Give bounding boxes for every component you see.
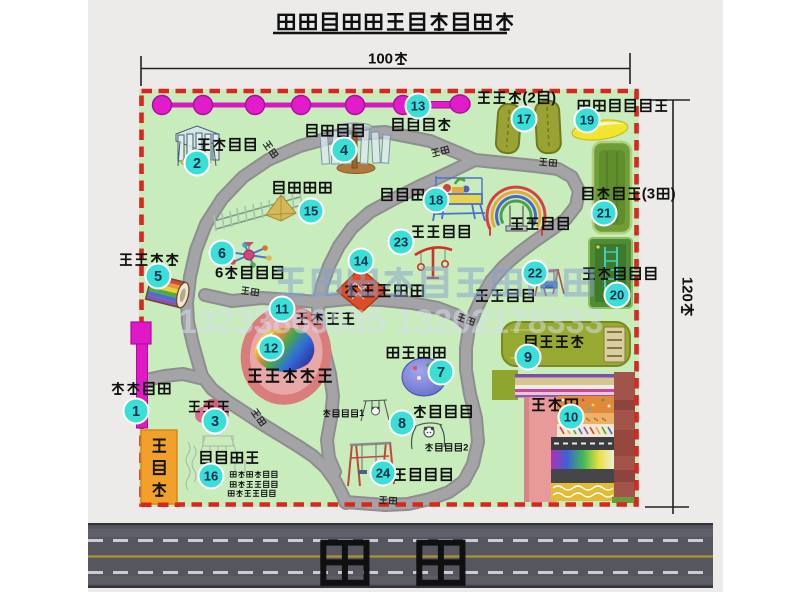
svg-text:22: 22 — [528, 266, 542, 281]
svg-text:8: 8 — [398, 416, 406, 432]
svg-text:13: 13 — [411, 99, 425, 114]
svg-text:15: 15 — [304, 204, 318, 219]
svg-text:24: 24 — [376, 466, 391, 481]
svg-text:13233869535 13202178333: 13233869535 13202178333 — [178, 303, 603, 341]
svg-text:12: 12 — [264, 341, 278, 356]
svg-text:7: 7 — [437, 365, 445, 381]
svg-text:6: 6 — [215, 264, 223, 281]
svg-text:5: 5 — [154, 269, 162, 285]
svg-text:6: 6 — [218, 246, 226, 262]
svg-text:2: 2 — [193, 156, 201, 172]
svg-text:17: 17 — [517, 112, 531, 127]
svg-text:(2: (2 — [522, 89, 535, 106]
svg-text:20: 20 — [610, 288, 624, 303]
svg-text:1: 1 — [359, 408, 364, 418]
svg-text:3: 3 — [211, 414, 219, 430]
svg-text:1: 1 — [132, 404, 140, 420]
svg-text:): ) — [671, 185, 676, 202]
svg-text:100: 100 — [368, 50, 393, 67]
svg-text:19: 19 — [580, 113, 594, 128]
svg-text:): ) — [551, 89, 556, 106]
svg-text:2: 2 — [463, 442, 468, 453]
svg-text:16: 16 — [204, 469, 218, 484]
svg-text:18: 18 — [429, 193, 443, 208]
svg-text:(3: (3 — [642, 185, 655, 202]
svg-text:11: 11 — [275, 302, 289, 317]
svg-text:4: 4 — [340, 143, 348, 159]
svg-text:10: 10 — [564, 410, 578, 425]
svg-text:23: 23 — [394, 235, 408, 250]
svg-text:9: 9 — [524, 350, 532, 366]
svg-text:120: 120 — [679, 277, 696, 302]
svg-text:14: 14 — [354, 254, 369, 269]
svg-text:21: 21 — [597, 206, 611, 221]
